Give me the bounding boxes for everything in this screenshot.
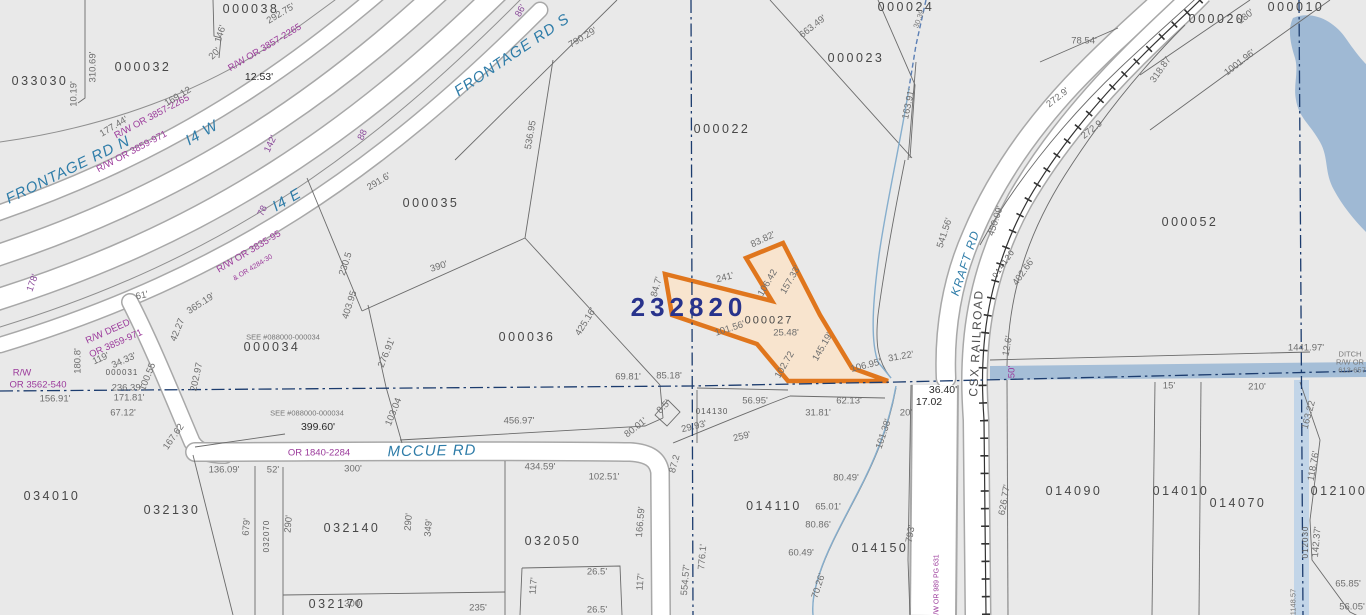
road-name: FRONTAGE RD S [452, 11, 573, 99]
dimension-label: 31.22' [888, 350, 915, 364]
dimension-label: 42.27 [169, 317, 187, 343]
dimension-label: 25.48' [773, 328, 799, 338]
parcel-id: 012030 [1302, 526, 1310, 559]
dimension-label: 17.02 [916, 397, 942, 408]
rw-record-label: OR 3562-540 [9, 380, 66, 390]
dimension-label: 300' [344, 464, 362, 474]
dimension-label: 65.85' [1335, 579, 1361, 589]
dimension-label: 403.95 [341, 290, 359, 321]
parcel-id[interactable]: 014110 [746, 500, 802, 513]
dimension-label: 536.95 [524, 120, 538, 150]
dimension-label: 31.81' [805, 408, 831, 418]
highlighted-parcel-id[interactable]: 232820 [631, 294, 748, 320]
dimension-label: 10.19' [69, 81, 79, 107]
dimension-label: 679' [241, 518, 252, 536]
parcel-id[interactable]: 012100 [1311, 485, 1366, 498]
road-name: I4 W [183, 118, 221, 148]
parcel-id[interactable]: 000027 [745, 316, 794, 327]
dimension-label: 456.97' [504, 416, 535, 426]
road-name: I4 E [270, 186, 304, 214]
parcel-id[interactable]: 000035 [403, 197, 460, 210]
dimension-label: 36.40' [929, 385, 957, 396]
dimension-label: 8.5' [655, 398, 672, 415]
dimension-label: 235' [469, 603, 487, 613]
parcel-id[interactable]: 014070 [1210, 497, 1267, 510]
dimension-label: 318.87 [1149, 55, 1173, 84]
dimension-label: 156.91' [40, 394, 71, 404]
dimension-label: 163.91' [901, 88, 917, 120]
dimension-label: 157.33' [779, 264, 803, 295]
dimension-label: 117' [529, 577, 540, 595]
dimension-label: 390' [429, 260, 449, 274]
dimension-label: 166.59' [635, 506, 647, 538]
dimension-label: 241' [715, 271, 734, 284]
parcel-id[interactable]: 000034 [244, 341, 301, 354]
dimension-label: 102.51' [589, 472, 620, 482]
parcel-id: 000031 [106, 369, 139, 377]
dimension-label: 793' [905, 524, 917, 543]
dimension-label: 62.13' [836, 396, 862, 406]
dimension-label: 310.69' [88, 52, 98, 83]
dimension-label: 67.12' [110, 408, 136, 418]
dimension-label: 290' [403, 513, 414, 531]
dimension-label: 52' [267, 465, 279, 475]
map-labels-layer: 0330300000320000380000350000360000340340… [0, 0, 1366, 615]
dimension-label: 663.49' [798, 14, 828, 40]
dimension-label: 230.5 [338, 251, 354, 277]
parcel-id: 014120 [991, 248, 1016, 279]
parcel-id[interactable]: 000036 [499, 331, 556, 344]
parcel-id[interactable]: 032140 [324, 522, 381, 535]
dimension-label: 56.05' [1339, 602, 1365, 612]
dimension-label: 56.95' [742, 396, 768, 406]
dimension-label: 180.8' [73, 348, 83, 374]
dimension-label: 210' [1248, 382, 1266, 392]
dimension-label: 272.9' [1045, 86, 1071, 109]
dimension-label: 60.49' [788, 548, 814, 558]
dimension-label: 101.38' [875, 418, 894, 450]
parcel-id[interactable]: 000052 [1162, 216, 1219, 229]
dimension-label: 425.16' [574, 306, 598, 337]
parcel-id: 032070 [263, 520, 271, 553]
dimension-label: 300' [344, 599, 362, 609]
dimension-label: 142' [263, 134, 279, 154]
dimension-label: 178' [26, 273, 41, 293]
parcel-id[interactable]: 014150 [852, 542, 909, 555]
rw-record-label: R/W OR 3857-2265 [227, 22, 303, 73]
rw-record-label: OR 1840-2284 [288, 448, 350, 458]
dimension-label: 26.5' [587, 605, 607, 615]
road-name: MCCUE RD [387, 443, 476, 460]
dimension-label: 434.59' [525, 462, 556, 472]
dimension-label: 29.93' [680, 419, 707, 434]
parcel-id[interactable]: 034010 [24, 490, 81, 503]
parcel-id[interactable]: 000032 [115, 61, 172, 74]
dimension-label: 61' [135, 290, 149, 302]
parcel-id[interactable]: 000010 [1268, 1, 1325, 14]
dimension-label: 142.37' [1311, 526, 1323, 558]
dimension-label: 1001.96' [1223, 48, 1257, 78]
dimension-label: 26.5' [587, 567, 607, 577]
dimension-label: 117' [636, 573, 647, 591]
dimension-label: 103.04 [384, 397, 404, 428]
dimension-label: 626.77' [998, 484, 1013, 516]
dimension-label: 86' [514, 3, 528, 18]
dimension-label: 365.19' [185, 292, 216, 317]
dimension-label: SEE #088000-000034 [270, 409, 344, 417]
parcel-id[interactable]: 032130 [144, 504, 201, 517]
dimension-label: 145.19' [811, 331, 835, 362]
dimension-label: 12.6' [1002, 335, 1015, 357]
dimension-label: 272.9 [1080, 119, 1105, 141]
dimension-label: 163.22 [1301, 400, 1318, 431]
dimension-label: 106.42 [757, 268, 780, 298]
dimension-label: 80.86' [805, 520, 831, 530]
dimension-label: 554.57' [680, 564, 692, 596]
dimension-label: 65.01' [815, 502, 841, 512]
dimension-label: 118.76' [1307, 450, 1322, 481]
dimension-label: 399.60' [301, 422, 335, 433]
rw-record-label: R/W [13, 368, 31, 378]
dimension-label: 290' [283, 515, 294, 533]
parcel-id: 014130 [696, 408, 729, 416]
dimension-label: SEE #088000-000034 [246, 333, 320, 341]
dimension-label: 276.91' [377, 337, 397, 369]
dimension-label: 180' [1236, 8, 1256, 26]
dimension-label: 202.97 [189, 362, 204, 392]
rw-record-label: 50' [1007, 366, 1017, 378]
dimension-label: 790.29' [567, 26, 598, 50]
dimension-label: 136.09' [209, 465, 240, 475]
dimension-label: 85.18' [656, 371, 682, 381]
parcel-id[interactable]: 014090 [1046, 485, 1103, 498]
dimension-label: 69.81' [615, 372, 641, 382]
dimension-label: 450.09' [987, 205, 1006, 237]
dimension-label: 613-657 [1338, 366, 1366, 374]
dimension-label: 167.62 [162, 422, 186, 451]
dimension-label: 259' [732, 430, 751, 443]
parcel-map-canvas[interactable]: 0330300000320000380000350000360000340340… [0, 0, 1366, 615]
dimension-label: 80.49' [833, 473, 859, 483]
dimension-label: 146' [214, 24, 228, 44]
dimension-label: 83.82' [749, 230, 776, 249]
dimension-label: 20' [207, 46, 222, 61]
road-name: KRAFT RD [949, 229, 981, 297]
parcel-id[interactable]: 014010 [1153, 485, 1210, 498]
dimension-label: 541.56' [936, 217, 955, 249]
parcel-id[interactable]: 033030 [12, 75, 69, 88]
dimension-label: 88 [356, 128, 369, 142]
parcel-id[interactable]: 000022 [694, 123, 751, 136]
dimension-label: 20' [900, 408, 912, 418]
dimension-label: 171.81' [114, 393, 145, 403]
dimension-label: 102.72 [774, 350, 797, 380]
dimension-label: 87.2 [668, 454, 682, 474]
dimension-label: 15' [1163, 381, 1175, 391]
road-name: FRONTAGE RD N [4, 133, 133, 206]
dimension-label: 70.26' [811, 572, 828, 599]
parcel-id[interactable]: 032050 [525, 535, 582, 548]
dimension-label: 78 [256, 204, 269, 218]
dimension-label: 78.54' [1071, 36, 1097, 46]
dimension-label: 101.56' [714, 320, 746, 339]
dimension-label: 1148.57 [1289, 589, 1297, 615]
dimension-label: 12.53' [245, 72, 273, 83]
dimension-label: 776.1' [697, 544, 709, 570]
railroad-name: CSX RAILROAD [967, 289, 985, 397]
dimension-label: 1441.97' [1288, 343, 1324, 353]
rw-record-label: R/W OR 989 PG 631 [934, 554, 941, 615]
dimension-label: 106.95' [850, 358, 882, 375]
parcel-id[interactable]: 000023 [828, 52, 885, 65]
dimension-label: 349' [423, 519, 434, 537]
dimension-label: 80.01' [623, 416, 649, 439]
dimension-label: 291.6' [366, 171, 393, 192]
dimension-label: 402.66' [1011, 257, 1036, 288]
